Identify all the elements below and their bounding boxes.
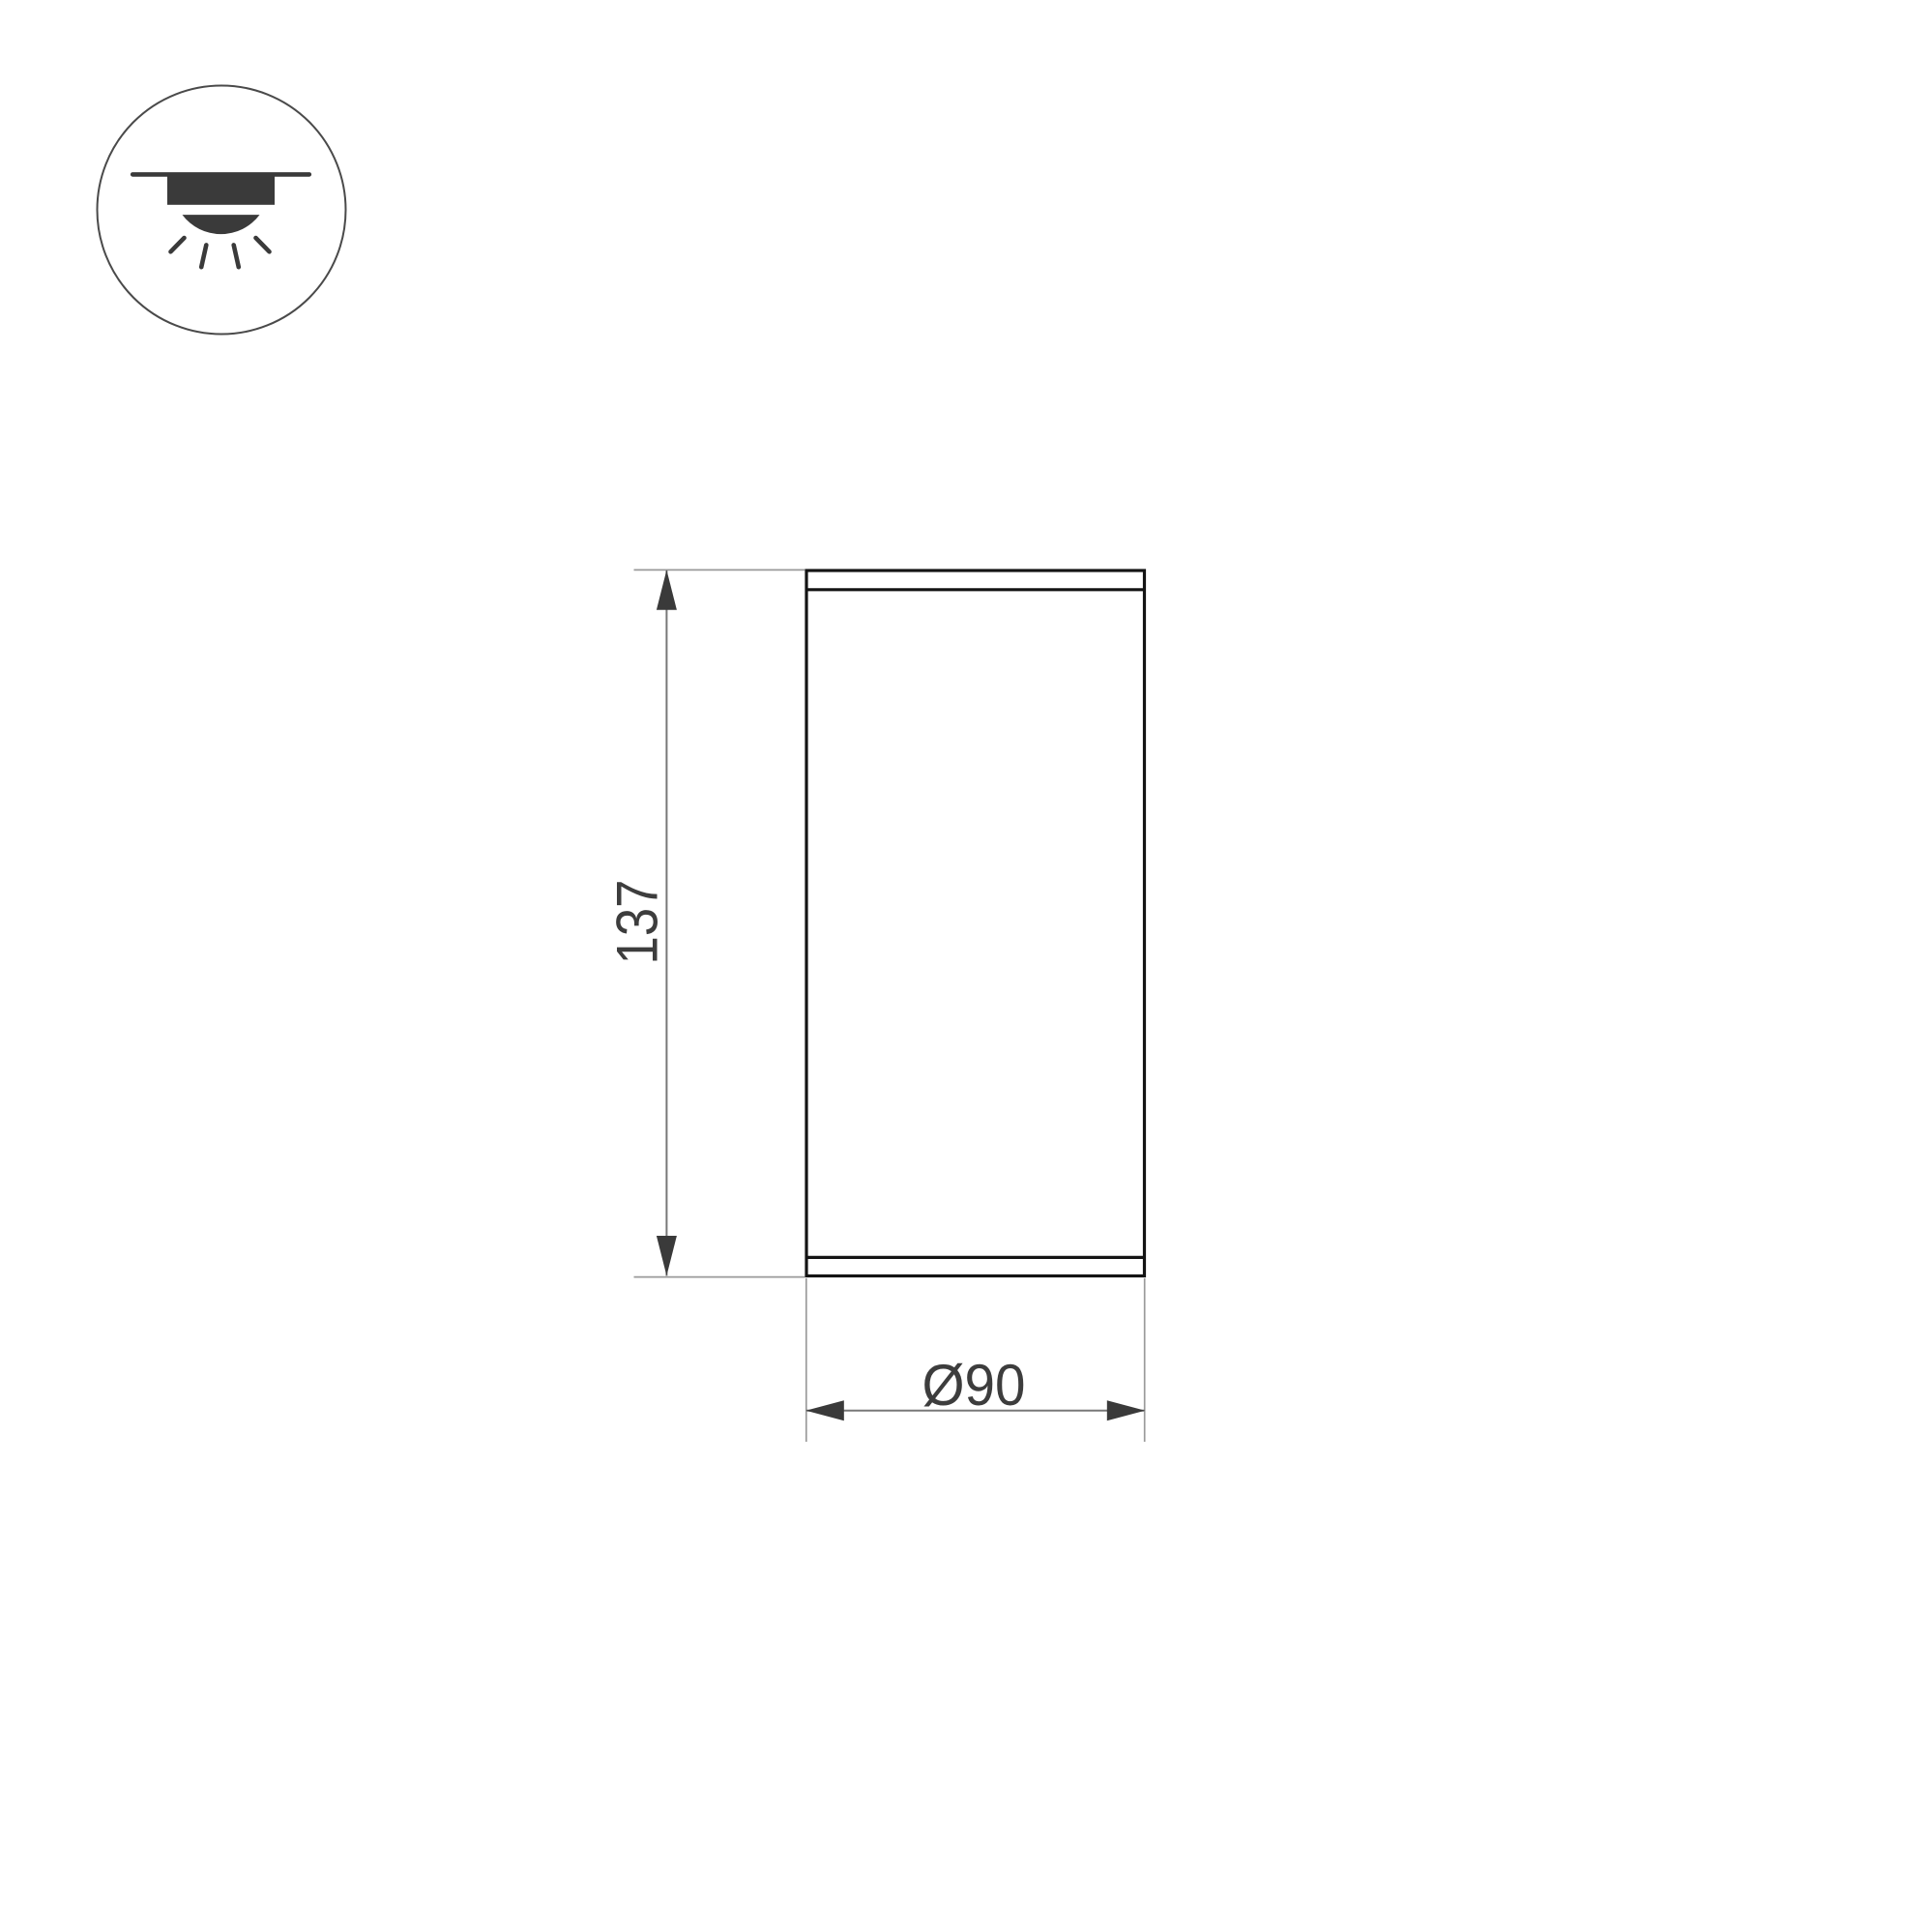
- svg-text:Ø90: Ø90: [922, 1352, 1026, 1418]
- svg-text:137: 137: [604, 880, 670, 965]
